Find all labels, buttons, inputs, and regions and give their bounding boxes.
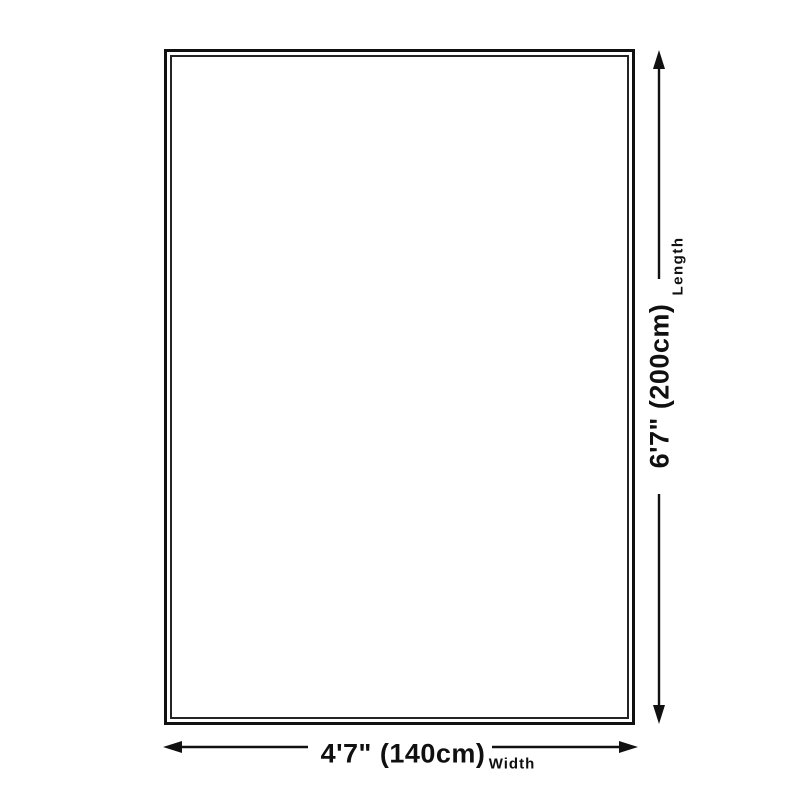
- width-arrow-left-icon: [163, 741, 182, 753]
- product-inner-outline: [170, 55, 629, 719]
- width-label: Width: [489, 756, 536, 773]
- length-value: 6'7" (200cm): [645, 304, 676, 469]
- length-arrow-down-icon: [653, 705, 665, 724]
- dimension-diagram: 6'7" (200cm) Length 4'7" (140cm) Width: [0, 0, 800, 800]
- width-value: 4'7" (140cm): [321, 739, 486, 770]
- length-arrow-up-icon: [653, 50, 665, 69]
- length-label: Length: [670, 237, 687, 296]
- width-arrow-right-icon: [619, 741, 638, 753]
- product-outline-rectangle: [164, 49, 635, 725]
